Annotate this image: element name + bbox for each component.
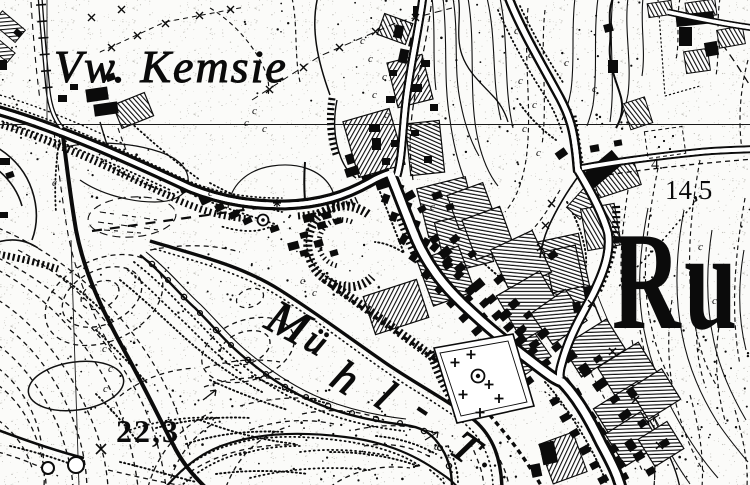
svg-text:c: c xyxy=(368,53,373,65)
svg-text:c: c xyxy=(108,363,113,375)
svg-text:c: c xyxy=(102,343,107,355)
svg-text:c: c xyxy=(384,109,389,121)
svg-text:c: c xyxy=(532,99,537,111)
svg-text:c: c xyxy=(252,105,257,117)
svg-text:c: c xyxy=(382,71,387,83)
svg-text:c: c xyxy=(110,403,115,415)
svg-text:c: c xyxy=(592,83,597,95)
svg-text:c: c xyxy=(564,57,569,69)
svg-text:c: c xyxy=(372,89,377,101)
svg-text:c: c xyxy=(244,117,249,129)
svg-text:c: c xyxy=(96,323,101,335)
svg-text:c: c xyxy=(430,201,435,213)
svg-text:4.: 4. xyxy=(651,156,663,173)
svg-text:14,5: 14,5 xyxy=(665,175,712,205)
svg-text:c: c xyxy=(300,275,305,287)
svg-text:c: c xyxy=(208,187,213,199)
svg-text:c: c xyxy=(52,177,57,189)
svg-text:22,3: 22,3 xyxy=(116,413,180,449)
svg-text:c: c xyxy=(12,121,17,133)
svg-text:c: c xyxy=(262,123,267,135)
svg-text:c: c xyxy=(434,441,439,453)
svg-text:c: c xyxy=(518,75,523,87)
svg-text:Vw. Kemsie: Vw. Kemsie xyxy=(54,41,288,92)
svg-text:c: c xyxy=(536,147,541,159)
svg-text:c: c xyxy=(514,25,519,37)
svg-text:c: c xyxy=(528,49,533,61)
svg-text:Ru: Ru xyxy=(612,203,740,359)
svg-text:c: c xyxy=(103,383,108,395)
svg-text:c: c xyxy=(360,35,365,47)
svg-text:c: c xyxy=(312,287,317,299)
svg-text:c: c xyxy=(102,155,107,167)
svg-text:c: c xyxy=(522,123,527,135)
